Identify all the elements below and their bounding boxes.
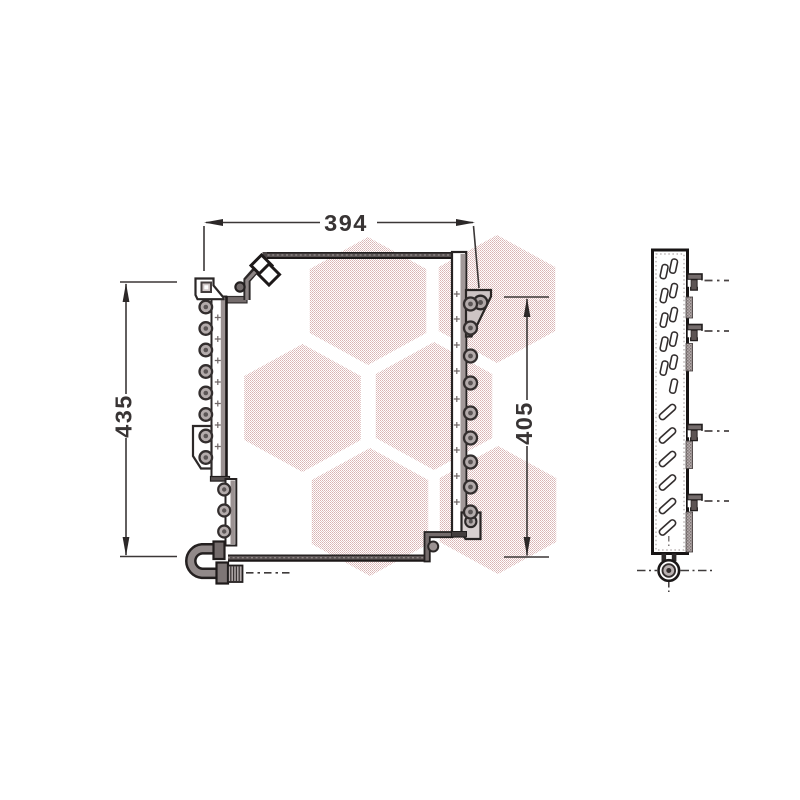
svg-text:405: 405 — [511, 401, 537, 445]
svg-text:394: 394 — [324, 210, 368, 236]
svg-text:435: 435 — [111, 394, 137, 438]
